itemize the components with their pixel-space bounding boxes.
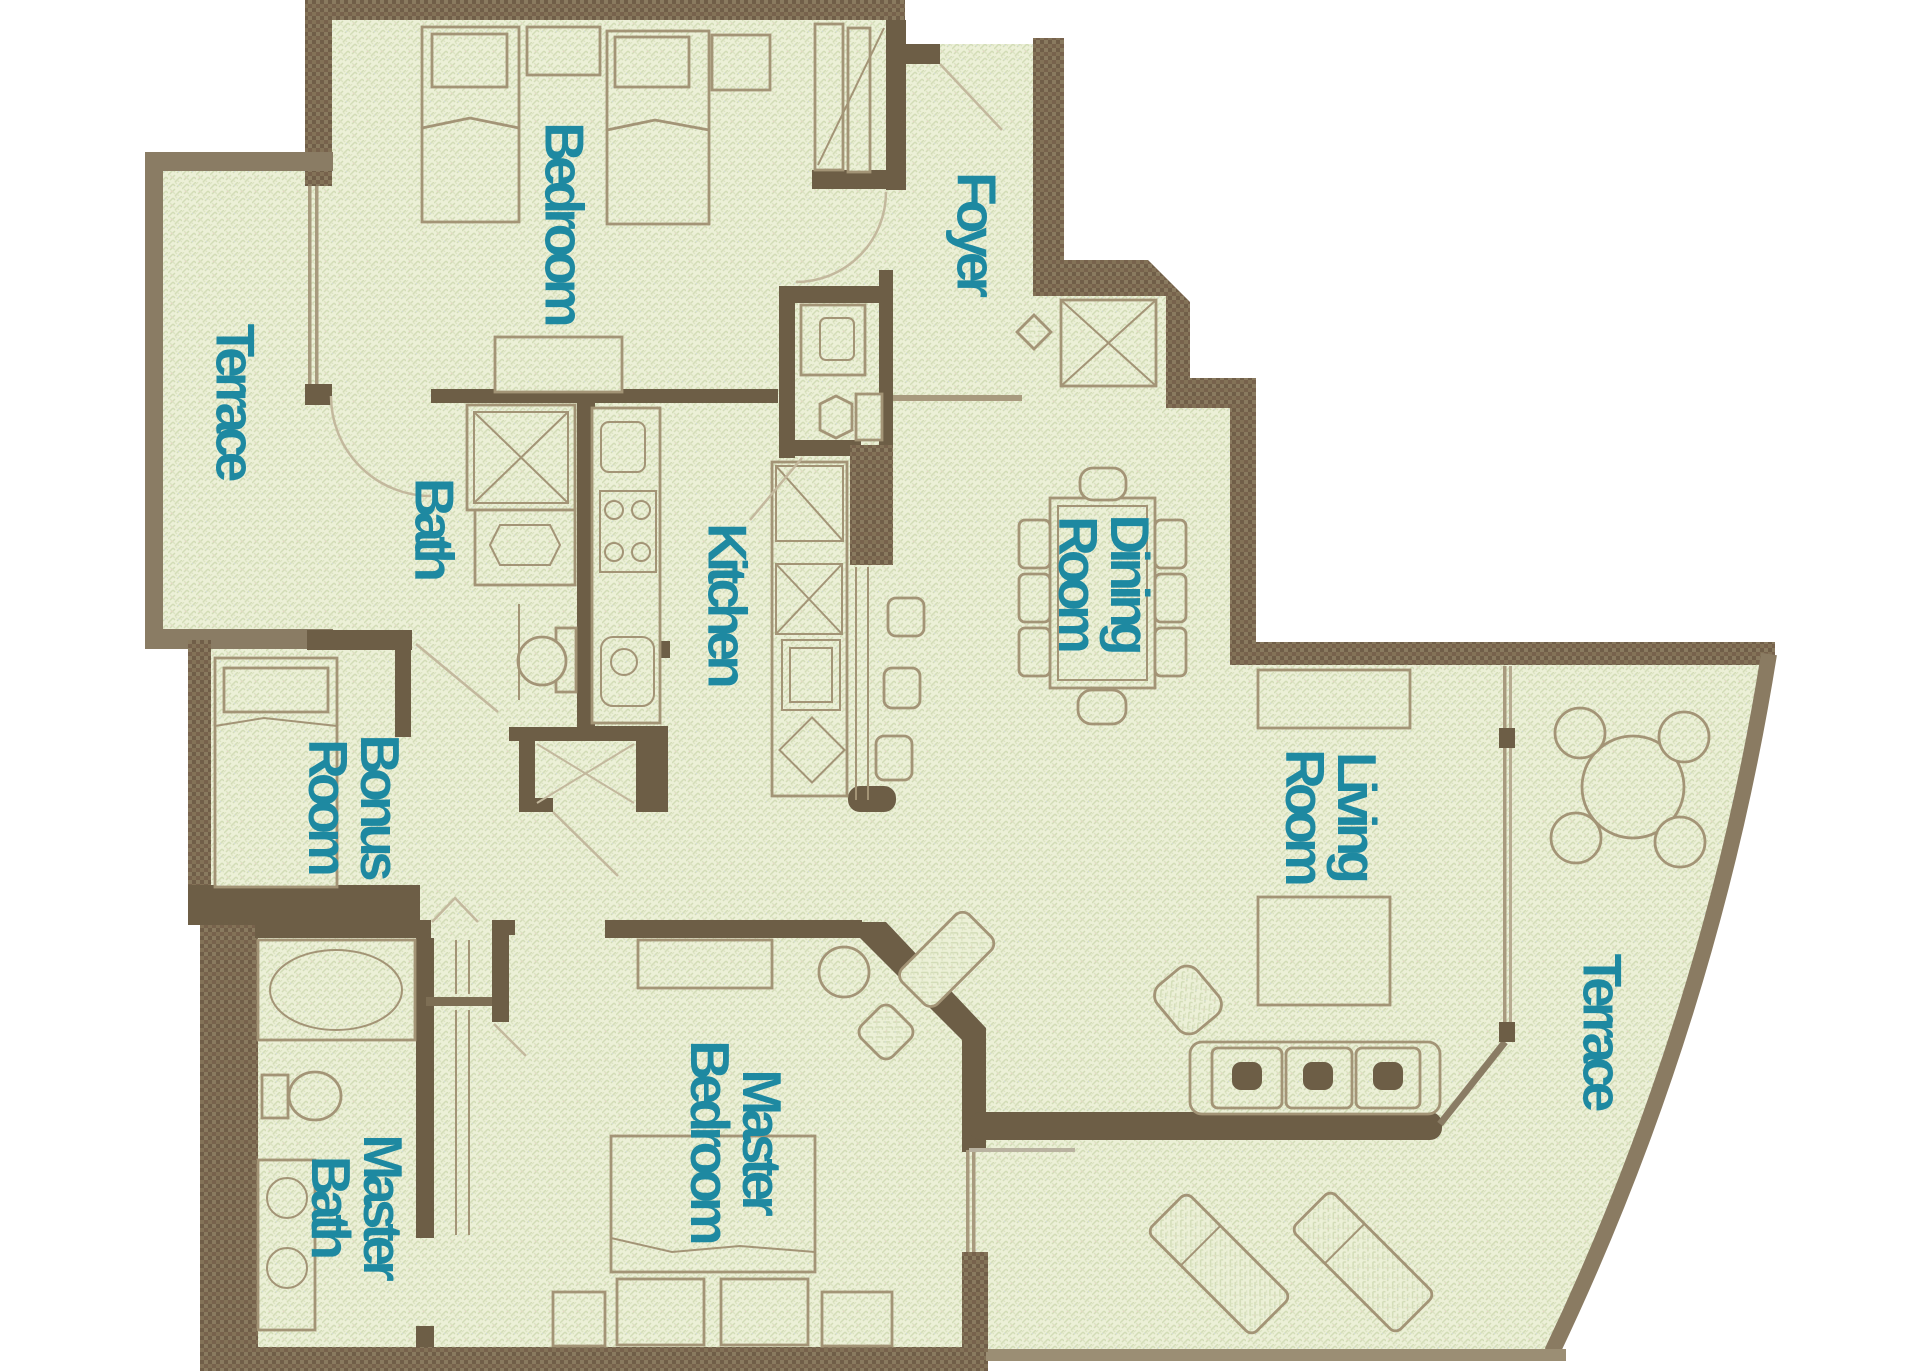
svg-text:BonusRoom: BonusRoom [297, 734, 411, 880]
svg-text:DiningRoom: DiningRoom [1047, 514, 1161, 651]
svg-text:Kitchen: Kitchen [696, 523, 758, 686]
svg-text:Bedroom: Bedroom [533, 122, 595, 325]
svg-text:Terrace: Terrace [1571, 954, 1633, 1111]
svg-text:LivingRoom: LivingRoom [1274, 749, 1388, 884]
svg-text:Terrace: Terrace [204, 324, 266, 481]
svg-text:Bath: Bath [403, 478, 465, 580]
svg-text:Foyer: Foyer [945, 172, 1007, 297]
